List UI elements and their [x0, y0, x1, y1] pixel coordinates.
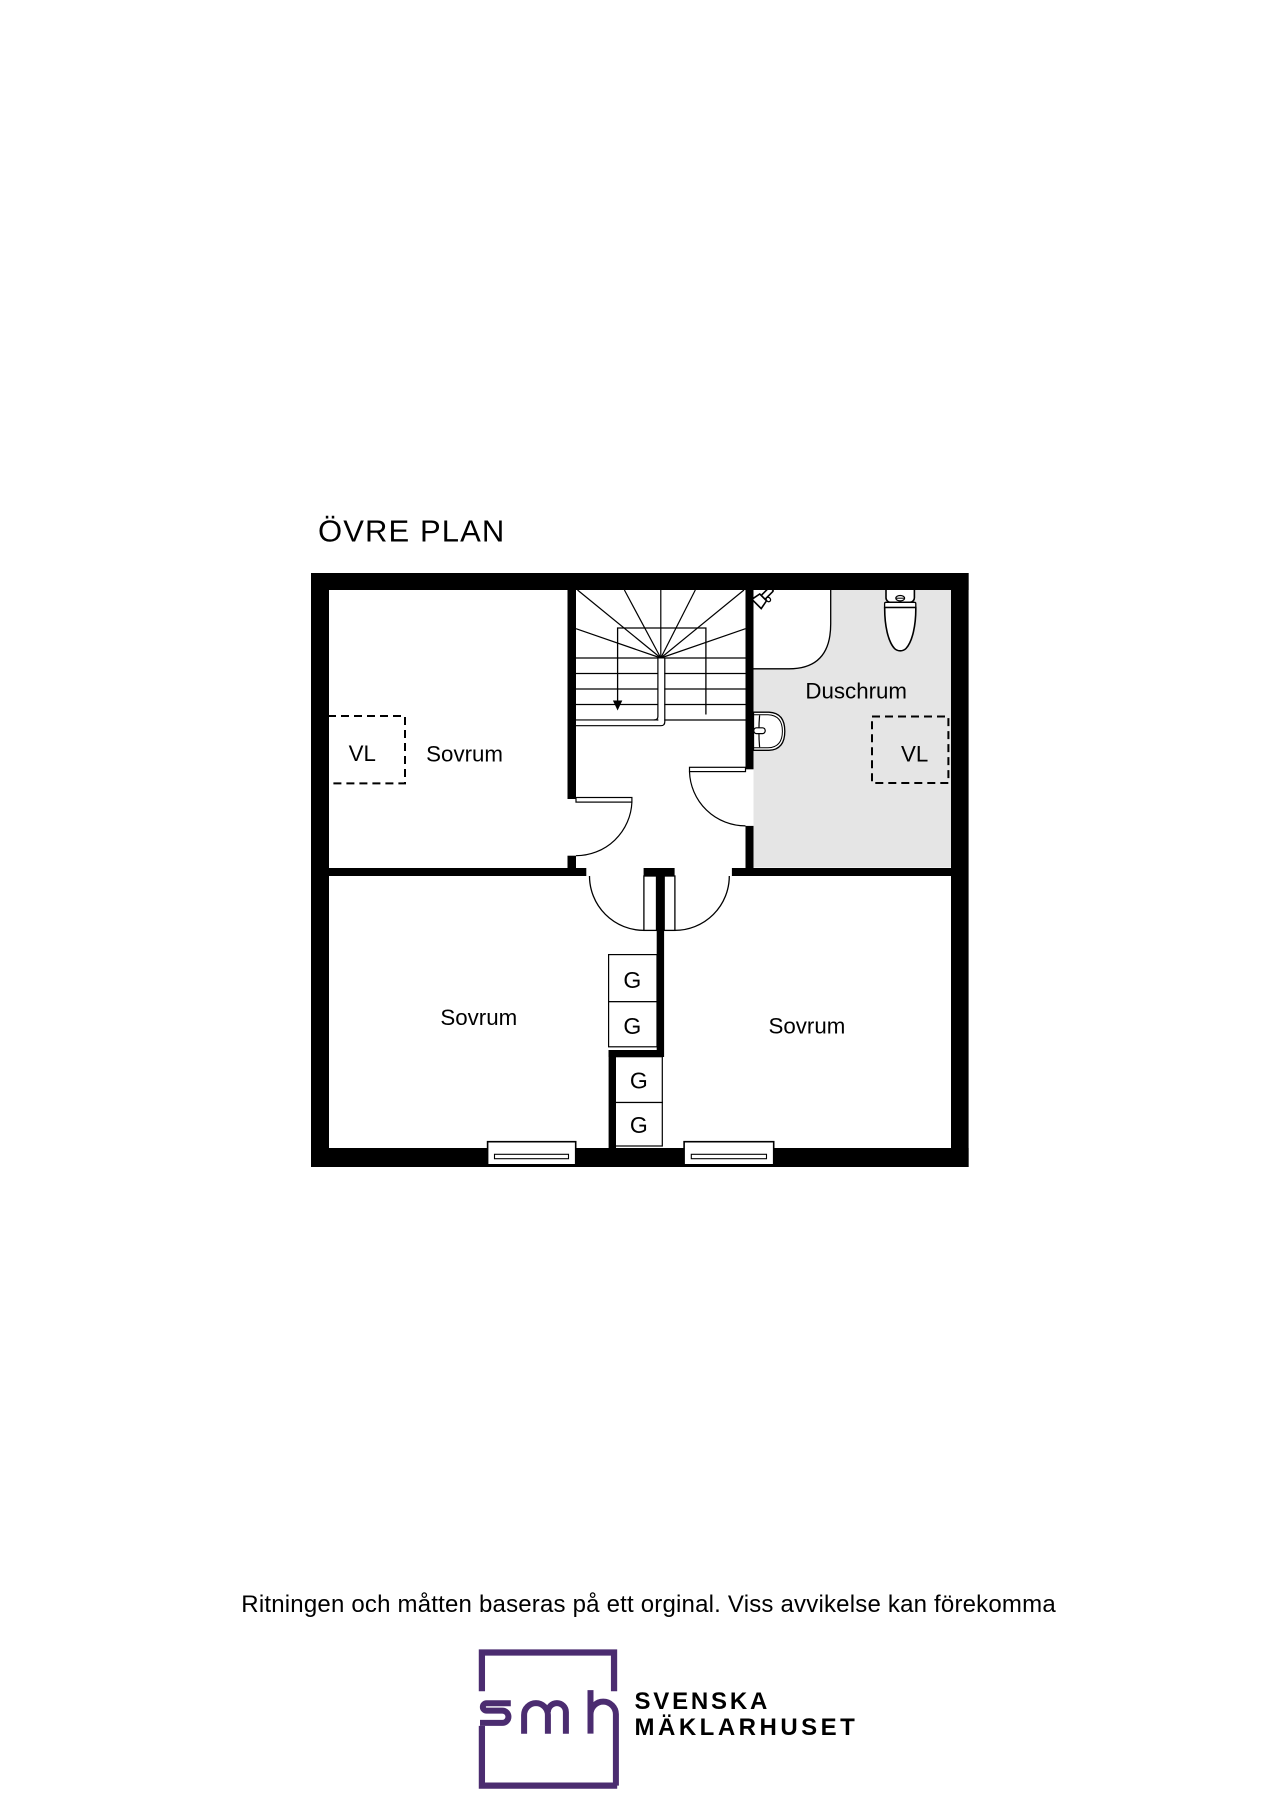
svg-text:MÄKLARHUSET: MÄKLARHUSET: [635, 1714, 859, 1741]
svg-text:G: G: [630, 1068, 648, 1094]
svg-text:VL: VL: [349, 741, 376, 766]
svg-text:G: G: [623, 1013, 641, 1039]
svg-text:Ritningen och måtten baseras p: Ritningen och måtten baseras på ett orgi…: [241, 1591, 1056, 1618]
svg-text:G: G: [623, 967, 641, 993]
svg-text:SVENSKA: SVENSKA: [635, 1688, 771, 1715]
svg-text:Sovrum: Sovrum: [768, 1013, 845, 1038]
svg-text:Duschrum: Duschrum: [805, 678, 907, 703]
svg-text:VL: VL: [901, 741, 928, 766]
svg-text:G: G: [630, 1112, 648, 1138]
svg-text:ÖVRE PLAN: ÖVRE PLAN: [318, 514, 505, 549]
svg-text:Sovrum: Sovrum: [426, 742, 503, 767]
svg-text:Sovrum: Sovrum: [440, 1005, 517, 1030]
